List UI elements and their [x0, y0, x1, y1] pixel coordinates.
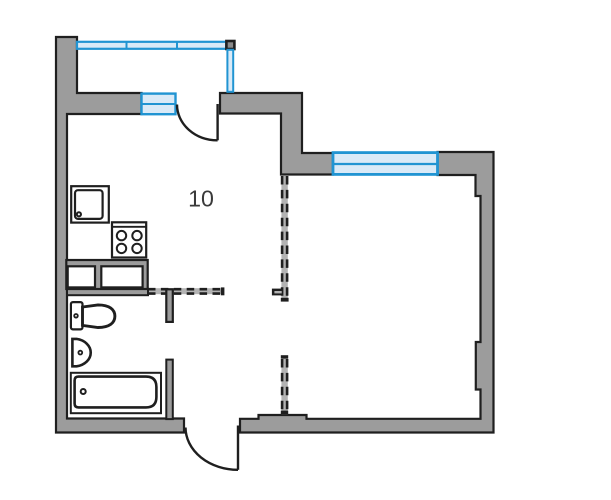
svg-text:10: 10 [188, 185, 214, 211]
